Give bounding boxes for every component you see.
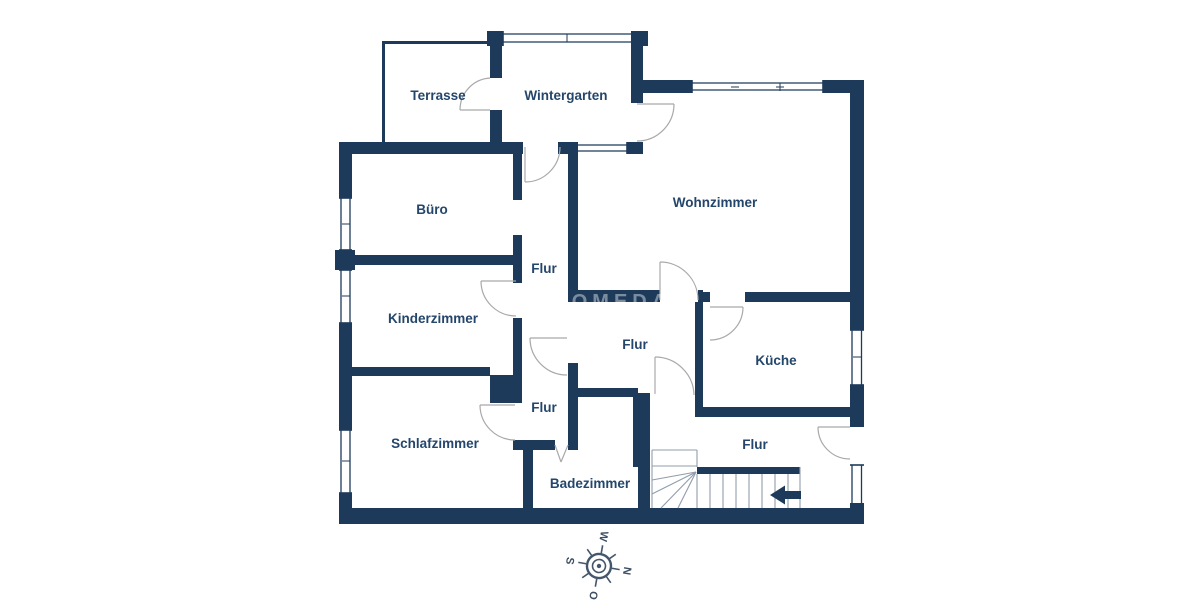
door-kinderzimmer <box>481 281 516 316</box>
room-label-buero: Büro <box>416 202 448 217</box>
room-label-flur-small: Flur <box>531 400 557 415</box>
room-label-terrasse: Terrasse <box>410 88 466 103</box>
door-flur-stairs <box>655 357 694 395</box>
window <box>850 330 864 385</box>
compass-north-label: N <box>620 566 633 576</box>
compass-rose: N O S W <box>558 525 639 600</box>
door-wintergarten-wohnzimmer <box>637 104 674 141</box>
compass-west-label: W <box>596 530 610 543</box>
door-entry <box>818 427 850 459</box>
room-label-kinderzimmer: Kinderzimmer <box>388 311 479 326</box>
window <box>573 142 627 154</box>
interior-walls <box>352 142 864 512</box>
compass-east-label: O <box>586 590 599 600</box>
room-label-flur-middle: Flur <box>622 337 648 352</box>
swing-door-badezimmer <box>555 445 568 462</box>
window <box>339 430 352 493</box>
door-kueche <box>710 307 743 340</box>
room-label-badezimmer: Badezimmer <box>550 476 631 491</box>
room-label-wohnzimmer: Wohnzimmer <box>673 195 758 210</box>
room-label-schlafzimmer: Schlafzimmer <box>391 436 480 451</box>
door-schlafzimmer <box>480 405 515 440</box>
room-label-kueche: Küche <box>755 353 797 368</box>
compass-south-label: S <box>563 556 576 565</box>
watermark: HOMEDAY <box>552 291 687 313</box>
room-label-flur-stairs: Flur <box>742 437 768 452</box>
door-wintergarten-flur <box>525 147 560 182</box>
window <box>339 198 352 250</box>
window <box>850 465 864 505</box>
window <box>692 80 823 93</box>
window <box>339 270 352 323</box>
room-label-wintergarten: Wintergarten <box>524 88 607 103</box>
door-flur-corner <box>530 338 567 375</box>
room-label-flur-upper: Flur <box>531 261 557 276</box>
window <box>503 31 633 46</box>
floor-plan-drawing: Terrasse Wintergarten Büro Wohnzimmer Fl… <box>0 0 1200 600</box>
floor-plan: Terrasse Wintergarten Büro Wohnzimmer Fl… <box>0 0 1200 600</box>
stairs <box>652 450 801 508</box>
